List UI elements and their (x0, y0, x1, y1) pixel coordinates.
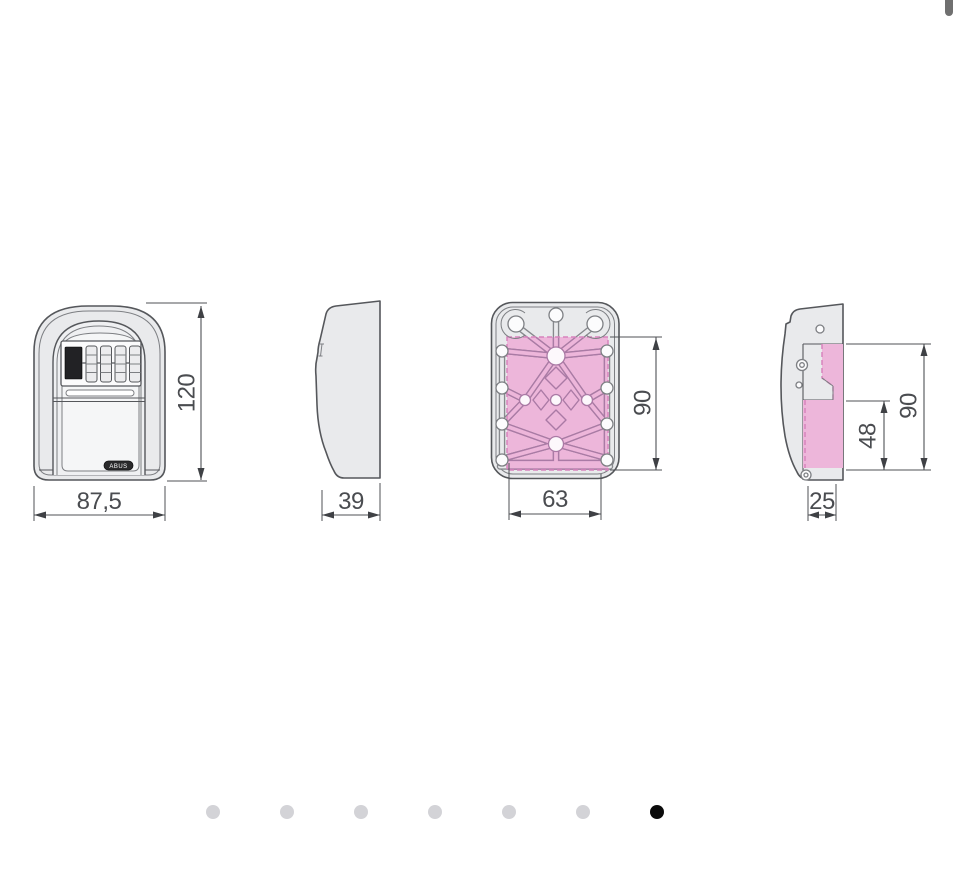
side-depth-dimension: 39 (322, 483, 380, 521)
dim-front-width: 87,5 (77, 488, 122, 515)
image-viewer: ABUS 120 87,5 (0, 0, 960, 875)
scrollbar-thumb[interactable] (945, 0, 953, 16)
brand-text: ABUS (109, 464, 127, 470)
carousel-dot[interactable] (502, 805, 516, 819)
reset-lever (65, 347, 82, 379)
carousel-dot[interactable] (428, 805, 442, 819)
carousel-dot[interactable] (280, 805, 294, 819)
front-width-dimension: 87,5 (34, 486, 165, 521)
mount-depth-dimension: 25 (808, 484, 836, 521)
mount-inner-height-dimension: 48 (846, 401, 890, 470)
carousel-dot[interactable] (354, 805, 368, 819)
dim-mount-depth: 25 (809, 488, 835, 515)
dim-front-height: 120 (174, 374, 201, 413)
mount-side-view: 90 48 25 (781, 304, 931, 521)
key-slot (66, 390, 134, 396)
combination-dial-panel (61, 341, 141, 386)
dim-back-width: 63 (542, 486, 568, 513)
front-view: ABUS 120 87,5 (34, 303, 207, 521)
carousel-dots (206, 805, 664, 819)
brand-badge: ABUS (104, 461, 133, 470)
back-view: 90 63 (492, 303, 663, 521)
mount-height-dimension: 90 (846, 344, 931, 470)
technical-drawing: ABUS 120 87,5 (0, 0, 960, 875)
dim-mount-inner-height: 48 (855, 423, 882, 449)
side-view: 39 (316, 301, 380, 521)
carousel-dot[interactable] (206, 805, 220, 819)
dim-mount-height: 90 (896, 393, 923, 419)
carousel-dot-active[interactable] (650, 805, 664, 819)
mount-highlight-lower (803, 400, 843, 468)
dim-back-height: 90 (630, 390, 657, 416)
dim-side-depth: 39 (338, 488, 364, 515)
carousel-dot[interactable] (576, 805, 590, 819)
